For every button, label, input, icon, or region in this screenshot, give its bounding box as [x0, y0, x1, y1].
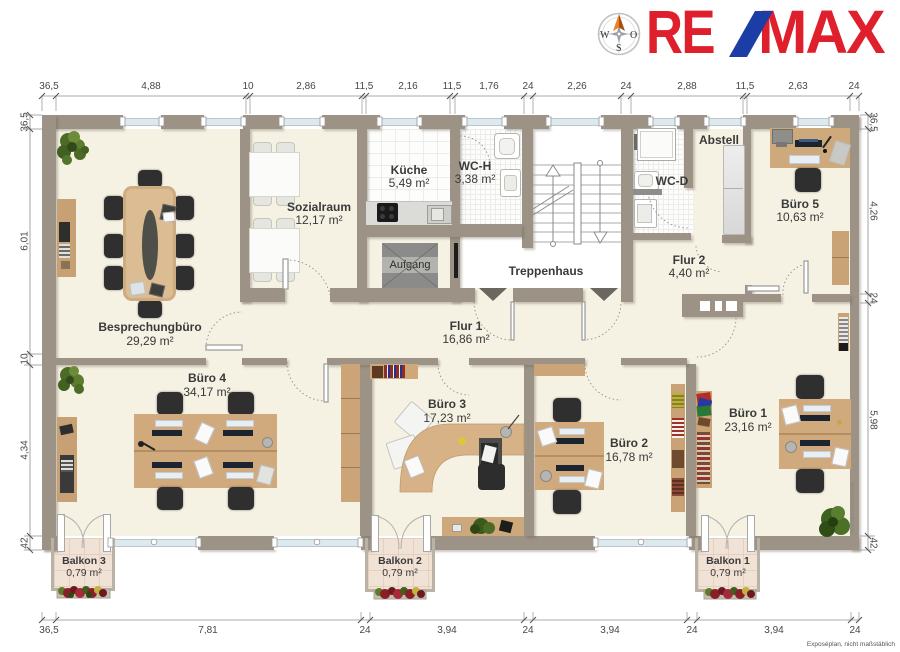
svg-text:O: O	[630, 30, 637, 41]
svg-text:S: S	[616, 43, 622, 54]
svg-text:W: W	[600, 30, 610, 41]
svg-text:Illustration EmmaGrafik: Illustration EmmaGrafik	[850, 482, 856, 534]
